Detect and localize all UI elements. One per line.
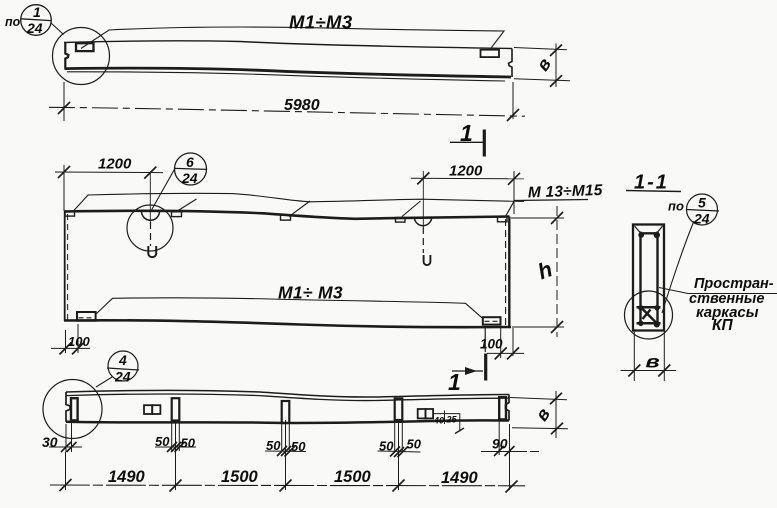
svg-text:40: 40	[433, 416, 444, 426]
svg-text:24: 24	[693, 211, 710, 227]
svg-text:1200: 1200	[449, 163, 483, 180]
svg-text:100: 100	[480, 337, 503, 352]
svg-text:1490: 1490	[441, 469, 479, 487]
svg-text:50: 50	[266, 438, 281, 453]
svg-text:в: в	[646, 352, 661, 372]
svg-text:Простран-: Простран-	[694, 276, 774, 292]
svg-text:М1÷М3: М1÷М3	[289, 12, 353, 33]
svg-text:24: 24	[26, 20, 43, 36]
svg-text:50: 50	[181, 436, 196, 451]
svg-text:6: 6	[186, 154, 194, 170]
svg-text:по: по	[5, 15, 21, 29]
svg-text:90: 90	[492, 436, 508, 452]
svg-text:50: 50	[379, 439, 394, 454]
svg-text:25: 25	[446, 415, 458, 425]
svg-text:30: 30	[42, 434, 58, 450]
svg-text:1: 1	[33, 4, 41, 20]
svg-text:4: 4	[118, 352, 127, 368]
svg-text:1200: 1200	[98, 156, 132, 173]
svg-text:5980: 5980	[284, 97, 320, 114]
svg-text:24: 24	[114, 369, 131, 385]
svg-text:100: 100	[68, 334, 90, 349]
svg-text:М1÷ М3: М1÷ М3	[278, 283, 343, 303]
svg-text:50: 50	[291, 439, 306, 454]
svg-text:М 13÷М15: М 13÷М15	[528, 182, 603, 202]
svg-text:1500: 1500	[221, 468, 259, 486]
svg-text:50: 50	[407, 437, 422, 452]
svg-text:1500: 1500	[334, 468, 372, 486]
svg-text:по: по	[668, 199, 684, 214]
svg-text:КП: КП	[712, 317, 734, 334]
svg-text:1: 1	[460, 120, 473, 146]
svg-text:1: 1	[448, 369, 461, 395]
svg-text:50: 50	[155, 434, 170, 449]
svg-text:24: 24	[181, 170, 198, 186]
svg-text:1490: 1490	[108, 468, 146, 486]
svg-text:5: 5	[698, 195, 706, 211]
